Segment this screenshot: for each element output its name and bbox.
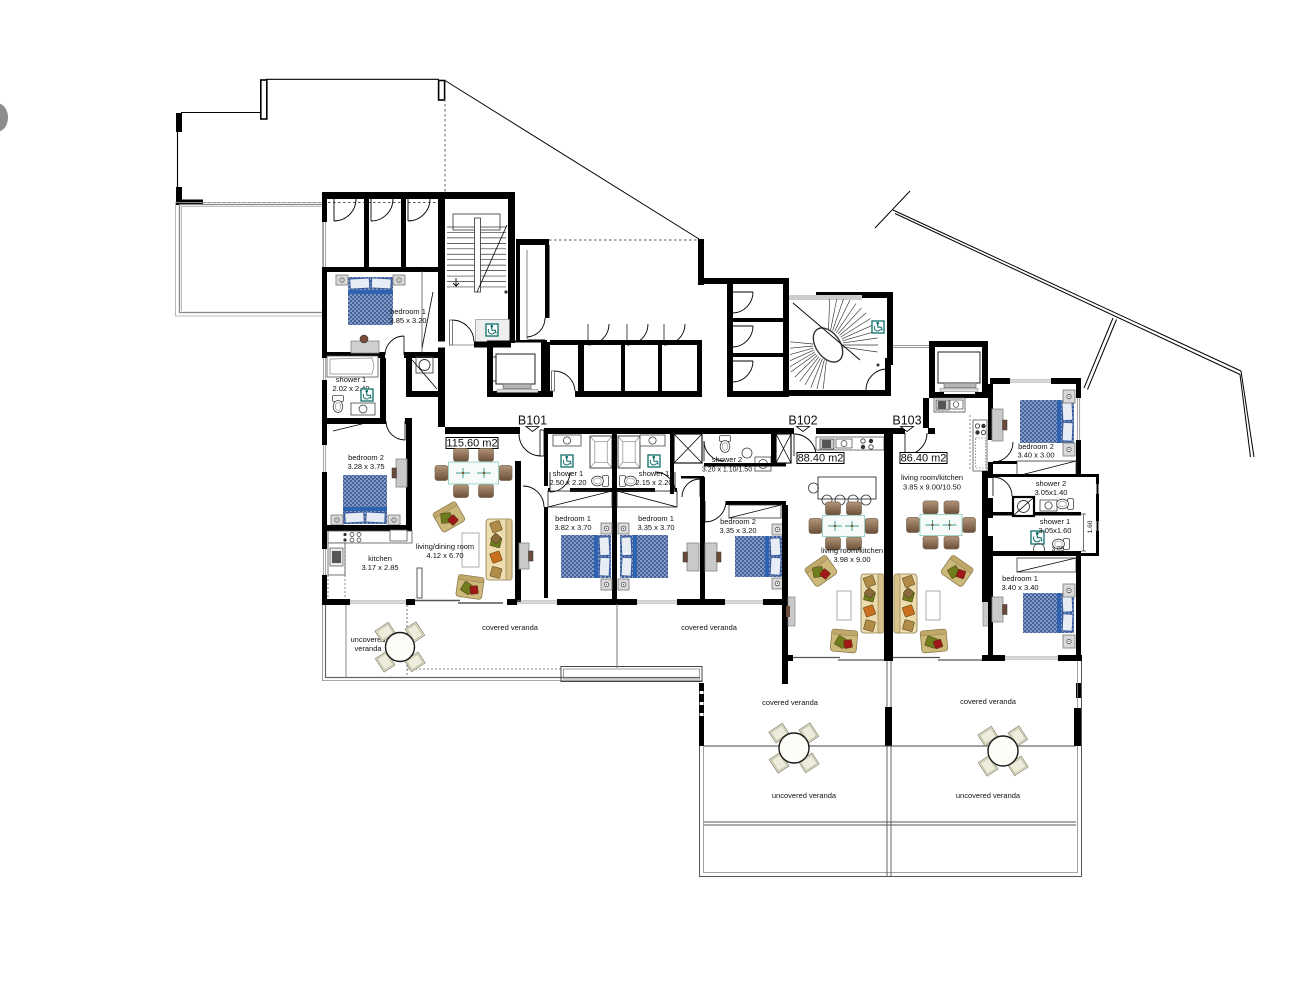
svg-text:shower 1: shower 1 [336, 375, 366, 384]
svg-text:3.17 x 2.85: 3.17 x 2.85 [361, 563, 398, 572]
svg-text:3.85 x 9.00/10.50: 3.85 x 9.00/10.50 [903, 483, 961, 492]
svg-text:veranda: veranda [354, 644, 382, 653]
svg-text:2.50 x 2.20: 2.50 x 2.20 [549, 478, 586, 487]
svg-text:3.82 x 3.70: 3.82 x 3.70 [554, 523, 591, 532]
svg-text:living/dining room: living/dining room [416, 542, 474, 551]
svg-text:1.60: 1.60 [1087, 520, 1094, 533]
svg-text:living room/kitchen: living room/kitchen [901, 473, 963, 482]
svg-text:3.20 x 1.10/1.50: 3.20 x 1.10/1.50 [702, 467, 752, 474]
svg-text:B103: B103 [892, 414, 921, 428]
svg-text:86.40 m2: 86.40 m2 [901, 453, 947, 465]
svg-text:uncovered veranda: uncovered veranda [772, 791, 837, 800]
svg-text:covered veranda: covered veranda [681, 623, 738, 632]
svg-text:covered veranda: covered veranda [482, 623, 539, 632]
svg-text:3.85 x 3.20: 3.85 x 3.20 [389, 316, 426, 325]
svg-text:covered veranda: covered veranda [762, 698, 819, 707]
svg-text:living room/kitchen: living room/kitchen [821, 546, 883, 555]
svg-text:4.12 x 6.70: 4.12 x 6.70 [426, 551, 463, 560]
svg-text:2.15 x 2.20: 2.15 x 2.20 [635, 478, 672, 487]
svg-text:covered veranda: covered veranda [960, 697, 1017, 706]
svg-text:uncovered veranda: uncovered veranda [956, 791, 1021, 800]
svg-text:3.35 x 3.70: 3.35 x 3.70 [637, 523, 674, 532]
svg-text:115.60 m2: 115.60 m2 [446, 438, 497, 450]
svg-text:shower 1: shower 1 [1040, 517, 1070, 526]
svg-text:3.05x1.60: 3.05x1.60 [1039, 526, 1072, 535]
svg-text:3.40 x 3.40: 3.40 x 3.40 [1001, 583, 1038, 592]
svg-text:bedroom 1: bedroom 1 [390, 307, 426, 316]
svg-text:bedroom 1: bedroom 1 [555, 514, 591, 523]
svg-text:kitchen: kitchen [368, 554, 392, 563]
svg-text:bedroom 1: bedroom 1 [638, 514, 674, 523]
svg-text:bedroom 2: bedroom 2 [720, 517, 756, 526]
svg-text:shower 1: shower 1 [553, 469, 583, 478]
svg-text:bedroom 1: bedroom 1 [1002, 574, 1038, 583]
svg-text:shower 2: shower 2 [1036, 479, 1066, 488]
svg-text:B101: B101 [518, 414, 547, 428]
svg-text:bedroom 2: bedroom 2 [348, 453, 384, 462]
svg-text:shower 1: shower 1 [639, 469, 669, 478]
svg-text:3.05x1.40: 3.05x1.40 [1035, 488, 1068, 497]
svg-text:88.40 m2: 88.40 m2 [798, 453, 844, 465]
svg-text:3.35 x 3.20: 3.35 x 3.20 [719, 526, 756, 535]
svg-text:3.40 x 3.00: 3.40 x 3.00 [1017, 451, 1054, 460]
svg-text:B102: B102 [788, 414, 817, 428]
svg-text:3.28 x 3.75: 3.28 x 3.75 [347, 462, 384, 471]
svg-text:3.98 x 9.00: 3.98 x 9.00 [833, 555, 870, 564]
